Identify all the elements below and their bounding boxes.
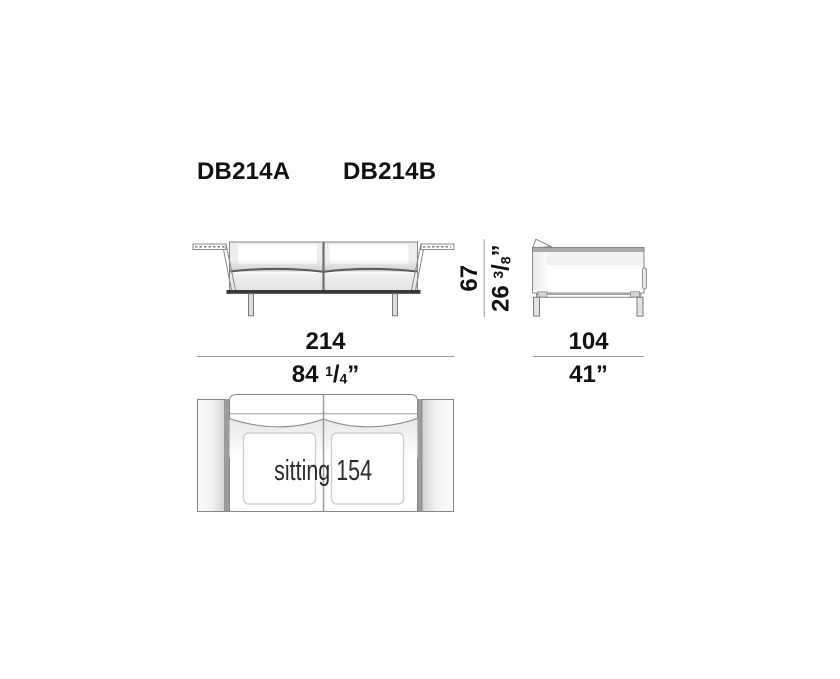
width-dimension: 214 84 1/4” bbox=[197, 329, 454, 394]
front-center-seam bbox=[322, 242, 324, 290]
depth-inch-whole: 41 bbox=[569, 361, 596, 388]
front-left-leg bbox=[249, 294, 254, 316]
side-base-rail bbox=[537, 294, 642, 297]
top-right-arm-panel bbox=[422, 400, 454, 512]
height-inch-numerator: 3 bbox=[490, 271, 506, 279]
spec-sheet: DB214A DB214B 214 84 1/4” 104 41” 67 26 … bbox=[0, 0, 840, 679]
sitting-width-label: sitting 154 bbox=[229, 457, 418, 486]
side-bracket-left bbox=[538, 292, 547, 297]
width-inch-whole: 84 bbox=[292, 361, 325, 388]
width-inch-numerator: 1 bbox=[325, 363, 333, 379]
height-inch-whole: 26 bbox=[488, 279, 515, 312]
top-view-drawing bbox=[198, 395, 454, 512]
side-back-shading bbox=[533, 252, 547, 290]
side-view-drawing bbox=[533, 239, 647, 316]
side-bracket-right bbox=[631, 292, 640, 297]
height-dimension: 67 26 3/8” bbox=[458, 239, 519, 317]
depth-cm-value: 104 bbox=[533, 329, 644, 354]
width-inch-unit: ” bbox=[347, 361, 359, 388]
width-inch-value: 84 1/4” bbox=[197, 357, 454, 394]
height-inch-slash: / bbox=[488, 264, 515, 271]
side-light-band bbox=[533, 252, 644, 265]
front-view-drawing bbox=[193, 242, 454, 316]
front-right-leg bbox=[393, 294, 398, 316]
depth-inch-unit: ” bbox=[596, 361, 608, 388]
height-cm-value: 67 bbox=[458, 239, 482, 317]
height-inch-unit: ” bbox=[488, 245, 515, 257]
side-arm-bump bbox=[643, 268, 647, 289]
depth-inch-value: 41” bbox=[533, 357, 644, 394]
depth-dimension: 104 41” bbox=[533, 329, 644, 394]
width-inch-slash: / bbox=[333, 361, 340, 388]
height-inch-denominator: 8 bbox=[497, 257, 513, 265]
sitting-width-text: sitting 154 bbox=[275, 457, 373, 486]
height-inch-value: 26 3/8” bbox=[485, 239, 519, 317]
top-left-arm-strip bbox=[225, 400, 230, 512]
side-left-leg bbox=[534, 297, 540, 316]
width-cm-value: 214 bbox=[197, 329, 454, 354]
side-right-leg bbox=[637, 297, 643, 316]
top-left-arm-panel bbox=[198, 400, 226, 512]
side-top-band bbox=[533, 248, 644, 252]
front-base-bar bbox=[227, 290, 421, 294]
model-code-a: DB214A bbox=[197, 160, 290, 184]
model-code-b: DB214B bbox=[343, 160, 436, 184]
